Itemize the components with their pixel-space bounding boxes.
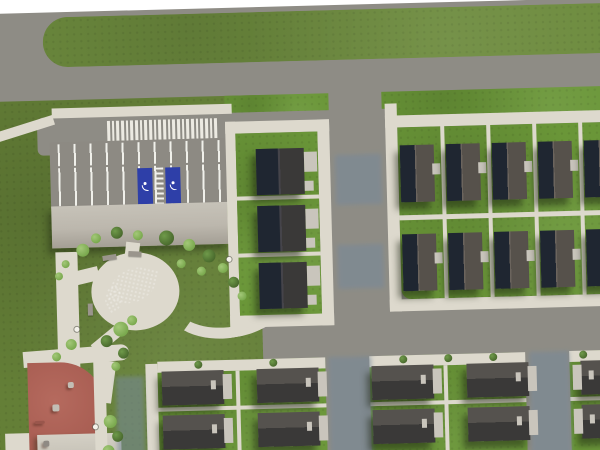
house bbox=[446, 143, 481, 201]
crosswalk-stripe bbox=[158, 120, 161, 140]
crosswalk-stripe bbox=[149, 120, 152, 140]
porch bbox=[524, 161, 532, 172]
roof-dormer bbox=[307, 422, 312, 431]
house bbox=[538, 141, 573, 199]
driveway-shadow bbox=[328, 356, 374, 450]
house bbox=[584, 140, 600, 198]
bench bbox=[88, 303, 93, 315]
bench bbox=[128, 251, 141, 257]
crosswalk-stripe bbox=[200, 119, 203, 139]
site-plan-canvas bbox=[0, 0, 600, 450]
crosswalk-stripe bbox=[196, 119, 199, 139]
solar-panel-roof bbox=[257, 206, 280, 253]
crosswalk-stripe bbox=[135, 120, 138, 140]
bush bbox=[196, 266, 205, 275]
lot-path-mid bbox=[399, 209, 600, 220]
lot-path-mid bbox=[570, 395, 600, 401]
porch bbox=[434, 253, 442, 264]
bush bbox=[103, 414, 116, 427]
access-aisle bbox=[155, 168, 164, 204]
house bbox=[402, 233, 437, 291]
lot-path bbox=[443, 365, 450, 450]
crosswalk-stripe bbox=[186, 119, 189, 139]
house bbox=[448, 232, 483, 290]
gable-cap bbox=[527, 366, 537, 391]
driveway-shadow bbox=[335, 154, 382, 205]
roof-dormer bbox=[211, 380, 216, 389]
house bbox=[492, 142, 527, 200]
house bbox=[163, 414, 226, 450]
porch bbox=[478, 162, 486, 173]
roof-dormer bbox=[516, 372, 521, 381]
crosswalk-stripe bbox=[107, 121, 110, 141]
house bbox=[494, 231, 529, 289]
crosswalk-stripe bbox=[182, 119, 185, 139]
lot-divider bbox=[237, 194, 319, 200]
gable-cap bbox=[318, 371, 328, 396]
roof-dormer bbox=[212, 424, 217, 433]
house bbox=[400, 144, 435, 202]
gable-cap bbox=[433, 368, 443, 393]
grass-island-top bbox=[42, 2, 600, 67]
crosswalk-stripe bbox=[144, 120, 147, 140]
solar-panel-roof bbox=[256, 149, 279, 196]
gable-cap bbox=[574, 409, 584, 434]
gable-cap bbox=[224, 418, 234, 443]
crosswalk-stripe bbox=[130, 120, 133, 140]
gable-cap bbox=[572, 365, 582, 390]
crosswalk-stripe bbox=[121, 121, 124, 141]
house bbox=[257, 205, 306, 252]
house bbox=[468, 406, 531, 442]
lamp-post bbox=[227, 257, 232, 262]
gable-cap bbox=[529, 410, 539, 435]
house bbox=[466, 362, 529, 398]
house bbox=[256, 148, 305, 195]
bush bbox=[237, 291, 246, 300]
house bbox=[258, 412, 321, 448]
accessible-parking-space-2 bbox=[165, 167, 181, 203]
play-equipment bbox=[68, 382, 74, 388]
crosswalk-stripe bbox=[191, 119, 194, 139]
porch bbox=[570, 160, 578, 171]
roof-dormer bbox=[306, 378, 311, 387]
roof-dormer bbox=[421, 375, 426, 384]
crosswalk-stripe bbox=[168, 119, 171, 139]
house bbox=[586, 229, 600, 287]
play-equipment bbox=[35, 421, 45, 424]
porch bbox=[480, 251, 488, 262]
wheelchair-icon bbox=[142, 181, 149, 190]
bush bbox=[176, 259, 185, 268]
lamp-post bbox=[74, 327, 79, 332]
bush bbox=[228, 276, 239, 287]
crosswalk-stripe bbox=[210, 118, 213, 138]
community-building-roof bbox=[51, 202, 230, 249]
roof-dormer bbox=[590, 415, 595, 424]
crosswalk-stripe bbox=[163, 119, 166, 139]
porch bbox=[526, 250, 534, 261]
crosswalk-stripe bbox=[177, 119, 180, 139]
gable-cap bbox=[319, 415, 329, 440]
porch bbox=[308, 295, 317, 305]
play-equipment bbox=[52, 404, 59, 411]
crosswalk-stripe bbox=[214, 118, 217, 138]
solar-panel-roof bbox=[259, 263, 282, 310]
lot-path bbox=[236, 371, 243, 450]
roof-dormer bbox=[422, 419, 427, 428]
lot-divider bbox=[238, 251, 320, 257]
house bbox=[582, 403, 600, 438]
crosswalk-stripe bbox=[205, 118, 208, 138]
porch bbox=[432, 164, 440, 175]
roof-dormer bbox=[517, 416, 522, 425]
house bbox=[256, 368, 319, 404]
bush bbox=[202, 249, 215, 262]
house bbox=[371, 365, 434, 401]
crosswalk-stripe bbox=[154, 120, 157, 140]
bush bbox=[113, 321, 128, 336]
crosswalk-stripe bbox=[126, 120, 129, 140]
house bbox=[259, 262, 308, 309]
site-plan bbox=[0, 0, 600, 450]
wheelchair-icon bbox=[170, 181, 177, 190]
crosswalk-stripe bbox=[116, 121, 119, 141]
house bbox=[540, 230, 575, 288]
porch bbox=[304, 152, 318, 172]
porch bbox=[307, 265, 321, 285]
bush bbox=[117, 347, 128, 358]
roof-dormer bbox=[589, 371, 594, 380]
gable-cap bbox=[434, 412, 444, 437]
bush bbox=[158, 230, 173, 245]
bush bbox=[112, 430, 123, 441]
accessible-parking-space-1 bbox=[137, 168, 153, 204]
gable-cap bbox=[223, 374, 233, 399]
bush bbox=[111, 361, 120, 370]
house bbox=[162, 370, 225, 406]
bush bbox=[51, 352, 60, 361]
bush bbox=[76, 243, 89, 256]
play-equipment bbox=[43, 441, 49, 447]
driveway-shadow bbox=[337, 244, 384, 289]
porch bbox=[306, 238, 315, 248]
crosswalk-stripe bbox=[112, 121, 115, 141]
bush bbox=[65, 338, 76, 349]
crosswalk-stripe bbox=[140, 120, 143, 140]
crosswalk-stripe bbox=[172, 119, 175, 139]
porch bbox=[305, 181, 314, 191]
porch bbox=[572, 249, 580, 260]
house bbox=[580, 359, 600, 394]
house bbox=[373, 409, 436, 445]
porch bbox=[305, 209, 319, 229]
lamp-post bbox=[93, 424, 98, 429]
